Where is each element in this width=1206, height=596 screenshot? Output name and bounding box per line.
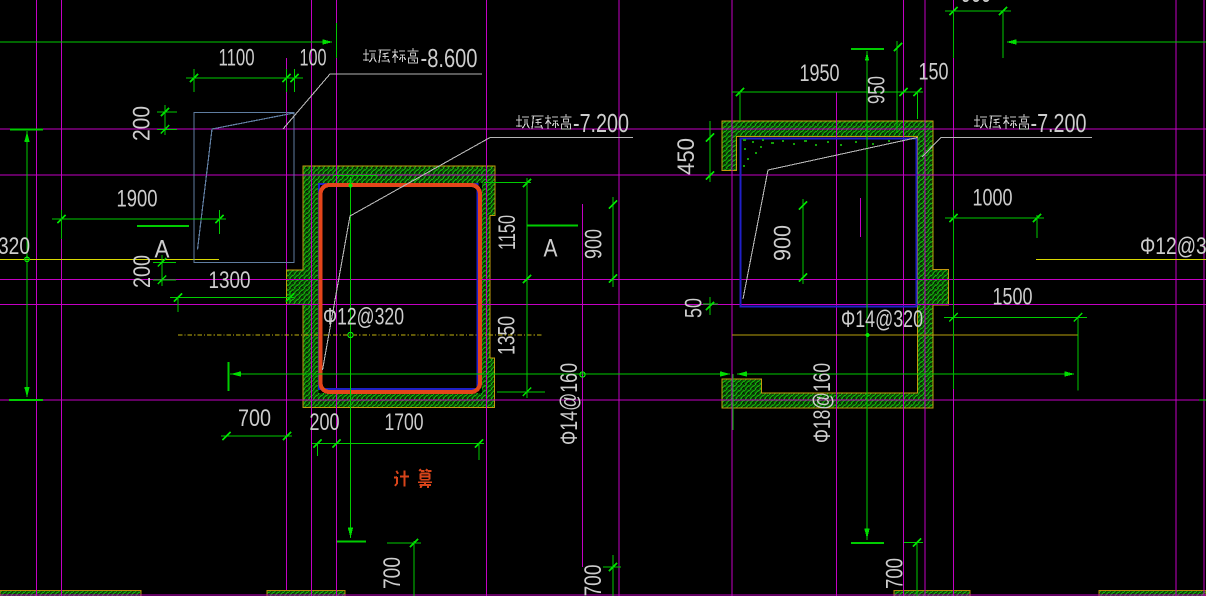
svg-text:700: 700 (882, 558, 909, 589)
svg-text:1700: 1700 (385, 409, 424, 436)
svg-text:A: A (544, 235, 558, 263)
svg-text:700: 700 (580, 565, 607, 596)
svg-text:Φ18@160: Φ18@160 (809, 363, 836, 443)
svg-text:450: 450 (673, 138, 700, 175)
svg-text:200: 200 (310, 409, 340, 436)
svg-text:900: 900 (770, 225, 797, 261)
svg-text:900: 900 (581, 229, 608, 259)
svg-text:-7.200: -7.200 (1031, 108, 1087, 138)
svg-text:700: 700 (238, 405, 271, 432)
svg-text:950: 950 (864, 76, 891, 104)
svg-text:Φ14@320: Φ14@320 (841, 306, 923, 333)
svg-text:200: 200 (129, 106, 156, 141)
svg-text:1300: 1300 (209, 267, 251, 294)
svg-text:A: A (155, 236, 170, 264)
svg-text:1900: 1900 (117, 186, 158, 213)
svg-text:200: 200 (129, 255, 156, 288)
svg-text:Φ14@160: Φ14@160 (556, 363, 583, 445)
svg-text:1000: 1000 (973, 185, 1013, 212)
svg-text:1100: 1100 (219, 45, 255, 72)
svg-text:1150: 1150 (494, 215, 521, 250)
svg-text:-8.600: -8.600 (421, 43, 478, 73)
svg-text:1350: 1350 (494, 316, 521, 355)
svg-text:1950: 1950 (800, 60, 840, 87)
svg-text:700: 700 (379, 557, 406, 589)
svg-text:900: 900 (961, 0, 991, 8)
svg-text:Φ12@320: Φ12@320 (323, 304, 404, 331)
svg-text:50: 50 (681, 298, 708, 318)
svg-text:100: 100 (300, 45, 327, 72)
svg-text:1500: 1500 (993, 284, 1033, 311)
svg-text:150: 150 (919, 59, 949, 86)
svg-text:Φ12@320: Φ12@320 (1140, 233, 1206, 260)
svg-text:-7.200: -7.200 (573, 108, 629, 138)
svg-text:320: 320 (0, 233, 30, 260)
